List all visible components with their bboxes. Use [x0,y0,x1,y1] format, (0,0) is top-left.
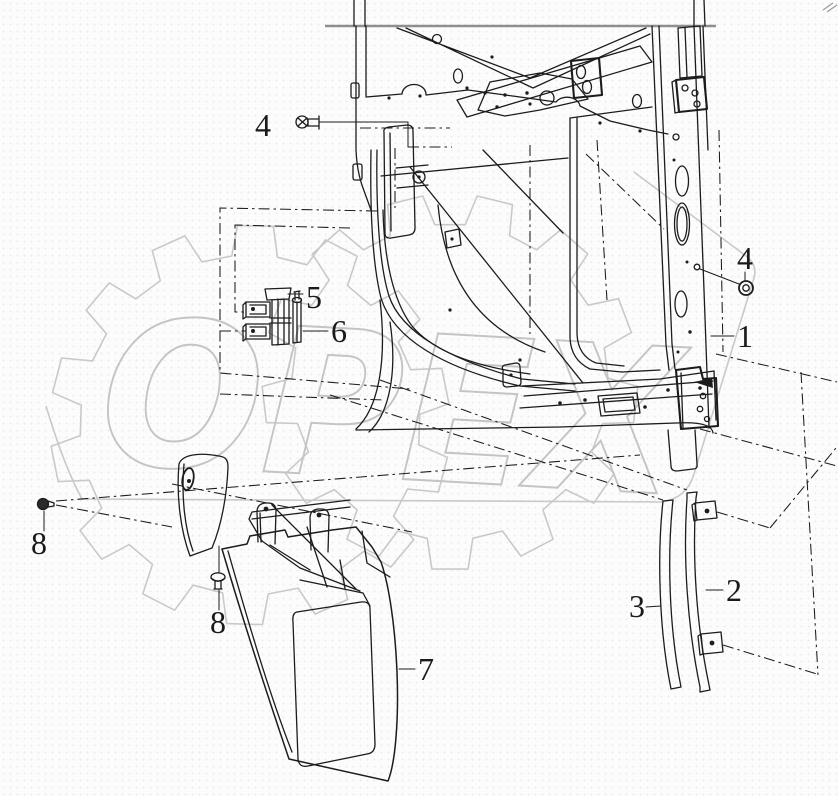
screw-icon [38,499,55,510]
callout-1-label: 1 [737,318,753,354]
bolt-icon [296,116,319,129]
callout-8-mid: 8 [210,546,226,640]
drawing-frame [325,3,837,26]
callout-4-top-label: 4 [255,107,271,143]
screw-icon [211,573,225,589]
callout-7-label: 7 [418,651,434,687]
parts-diagram-canvas: OPEX [0,0,838,796]
callout-6-label: 6 [331,313,347,349]
callout-8-mid-label: 8 [210,604,226,640]
callout-3: 3 [629,588,661,624]
rail-2 [686,492,710,692]
callout-4-top: 4 [255,107,408,147]
callout-7: 7 [399,651,434,687]
callout-2-label: 2 [726,572,742,608]
callout-2: 2 [706,572,742,608]
parts-diagram-page: OPEX [0,0,838,796]
callout-8-left-label: 8 [31,525,47,561]
callout-4-right: 4 [700,240,753,284]
rail-bracket [692,501,717,521]
leader-line [646,606,661,607]
callout-5-label: 5 [306,279,322,315]
corner-mark [823,3,837,12]
callout-8-left: 8 [31,511,47,561]
callout-4-right-label: 4 [737,240,753,276]
callout-3-label: 3 [629,588,645,624]
upper-hinge-bracket [676,77,707,112]
